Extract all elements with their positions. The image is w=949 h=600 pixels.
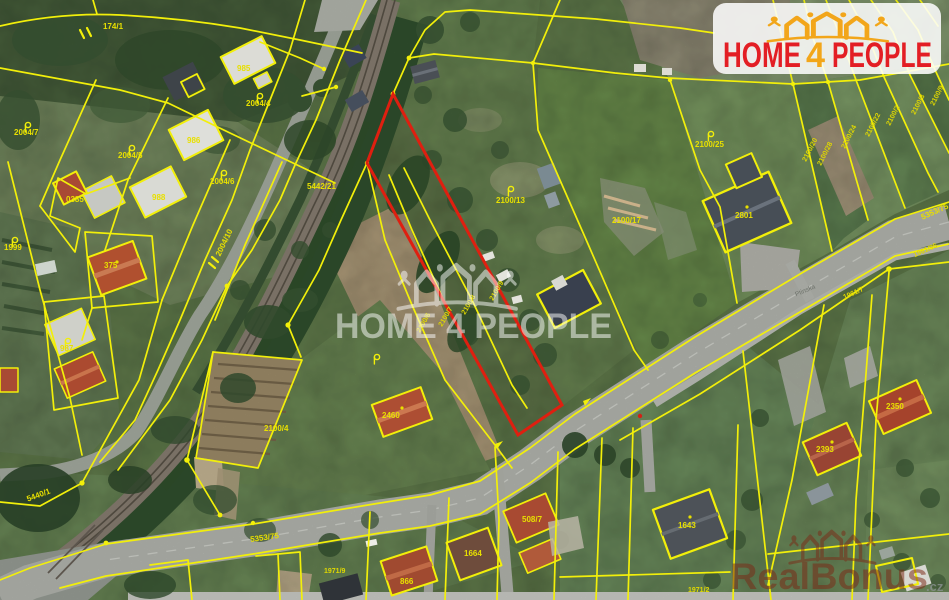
- svg-text:RealBonus: RealBonus: [730, 556, 928, 597]
- svg-text:2004/5: 2004/5: [118, 151, 143, 160]
- svg-text:2004/6: 2004/6: [210, 177, 235, 186]
- svg-text:988: 988: [152, 193, 166, 202]
- svg-text:5442/21: 5442/21: [307, 182, 336, 191]
- svg-text:986: 986: [187, 136, 201, 145]
- svg-text:2393: 2393: [816, 445, 834, 454]
- svg-text:2004/4: 2004/4: [246, 99, 271, 108]
- svg-text:HOME: HOME: [723, 36, 801, 75]
- svg-text:1971/2: 1971/2: [688, 587, 710, 594]
- svg-text:1999: 1999: [4, 243, 22, 252]
- svg-text:987: 987: [60, 344, 74, 353]
- svg-text:985: 985: [237, 64, 251, 73]
- svg-text:.cz: .cz: [926, 579, 944, 594]
- svg-text:1643: 1643: [678, 521, 696, 530]
- svg-text:0385: 0385: [66, 195, 84, 204]
- svg-text:2004/7: 2004/7: [14, 128, 39, 137]
- svg-text:866: 866: [400, 577, 414, 586]
- svg-text:174/1: 174/1: [103, 22, 124, 31]
- svg-text:2100/17: 2100/17: [612, 216, 641, 225]
- svg-text:4: 4: [806, 36, 826, 75]
- svg-text:508/7: 508/7: [522, 515, 543, 524]
- svg-text:HOME 4 PEOPLE: HOME 4 PEOPLE: [335, 307, 612, 346]
- svg-text:2801: 2801: [735, 211, 753, 220]
- svg-text:PEOPLE: PEOPLE: [832, 36, 932, 75]
- svg-text:2100/25: 2100/25: [695, 140, 724, 149]
- svg-text:2100/4: 2100/4: [264, 424, 289, 433]
- svg-text:2350: 2350: [886, 402, 904, 411]
- svg-text:2460: 2460: [382, 411, 400, 420]
- svg-text:1664: 1664: [464, 549, 482, 558]
- svg-text:1971/9: 1971/9: [324, 568, 346, 575]
- svg-text:2100/13: 2100/13: [496, 196, 525, 205]
